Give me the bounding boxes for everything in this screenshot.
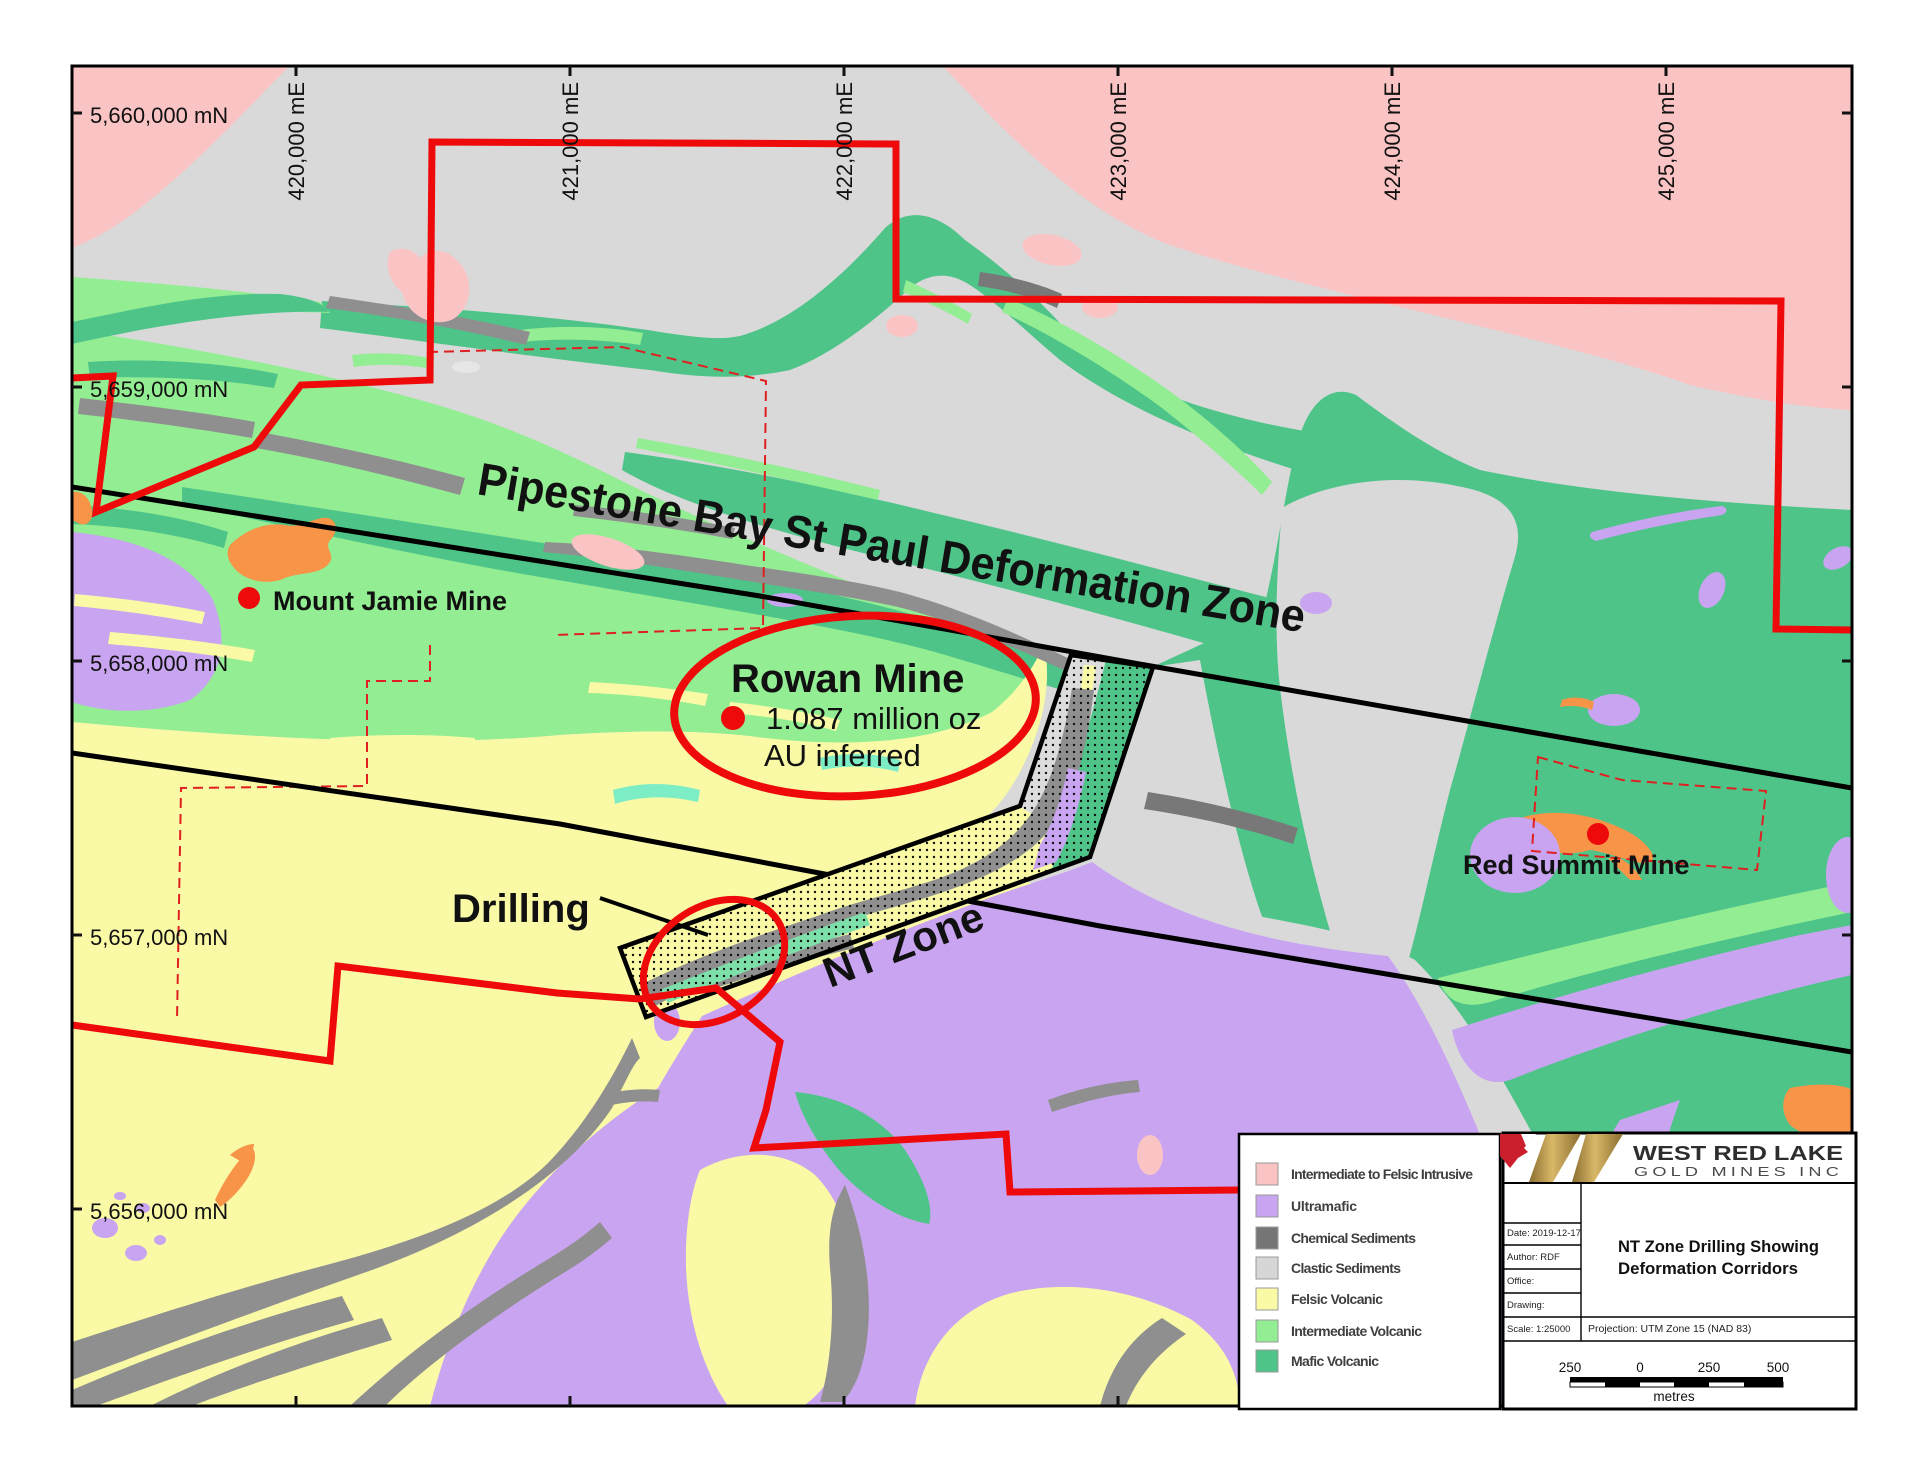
svg-text:5,658,000 mN: 5,658,000 mN [90, 651, 228, 676]
svg-text:Author: RDF: Author: RDF [1507, 1252, 1560, 1263]
svg-text:421,000 mE: 421,000 mE [558, 82, 583, 201]
svg-text:422,000 mE: 422,000 mE [832, 82, 857, 201]
svg-text:Deformation Corridors: Deformation Corridors [1618, 1259, 1798, 1278]
svg-text:420,000 mE: 420,000 mE [284, 82, 309, 201]
svg-text:Intermediate to Felsic Intrusi: Intermediate to Felsic Intrusive [1291, 1166, 1473, 1182]
svg-text:NT Zone Drilling Showing: NT Zone Drilling Showing [1618, 1237, 1819, 1256]
svg-text:1.087 million oz: 1.087 million oz [766, 701, 981, 736]
svg-text:250: 250 [1698, 1360, 1721, 1375]
svg-text:425,000 mE: 425,000 mE [1654, 82, 1679, 201]
svg-text:Intermediate Volcanic: Intermediate Volcanic [1291, 1323, 1422, 1339]
svg-text:Scale: 1:25000: Scale: 1:25000 [1507, 1324, 1570, 1335]
svg-text:423,000 mE: 423,000 mE [1106, 82, 1131, 201]
svg-text:5,659,000 mN: 5,659,000 mN [90, 377, 228, 402]
svg-text:Projection: UTM Zone 15 (NAD 8: Projection: UTM Zone 15 (NAD 83) [1588, 1323, 1751, 1335]
svg-text:AU inferred: AU inferred [764, 738, 921, 773]
svg-text:Drawing:: Drawing: [1507, 1300, 1545, 1311]
svg-text:Date: 2019-12-17: Date: 2019-12-17 [1507, 1228, 1581, 1239]
svg-text:Mafic Volcanic: Mafic Volcanic [1291, 1353, 1379, 1369]
svg-text:WEST RED LAKE: WEST RED LAKE [1633, 1143, 1843, 1165]
svg-text:5,660,000 mN: 5,660,000 mN [90, 103, 228, 128]
svg-text:Office:: Office: [1507, 1276, 1534, 1287]
svg-text:Felsic Volcanic: Felsic Volcanic [1291, 1291, 1383, 1307]
svg-text:5,657,000 mN: 5,657,000 mN [90, 925, 228, 950]
svg-text:Drilling: Drilling [452, 887, 590, 931]
svg-text:0: 0 [1636, 1360, 1644, 1375]
svg-text:5,656,000 mN: 5,656,000 mN [90, 1199, 228, 1224]
svg-text:250: 250 [1559, 1360, 1582, 1375]
svg-text:Rowan Mine: Rowan Mine [731, 657, 964, 701]
svg-text:Clastic Sediments: Clastic Sediments [1291, 1260, 1401, 1276]
svg-text:Chemical Sediments: Chemical Sediments [1291, 1230, 1416, 1246]
svg-text:Ultramafic: Ultramafic [1291, 1198, 1357, 1214]
svg-text:metres: metres [1653, 1389, 1695, 1404]
svg-text:Mount Jamie Mine: Mount Jamie Mine [273, 586, 507, 616]
svg-text:Red Summit Mine: Red Summit Mine [1463, 850, 1690, 880]
svg-text:500: 500 [1767, 1360, 1790, 1375]
svg-text:424,000 mE: 424,000 mE [1380, 82, 1405, 201]
svg-text:GOLD MINES INC: GOLD MINES INC [1634, 1164, 1843, 1179]
